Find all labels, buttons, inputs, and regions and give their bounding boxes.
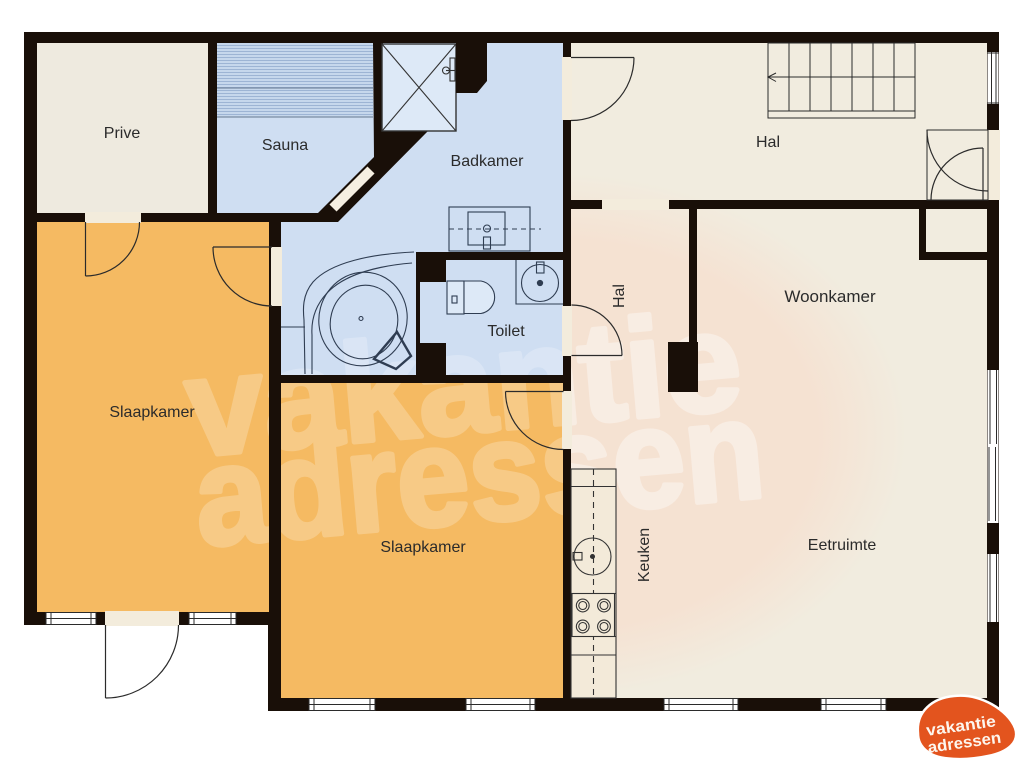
svg-text:Badkamer: Badkamer xyxy=(451,153,525,170)
svg-text:Slaapkamer: Slaapkamer xyxy=(109,404,195,421)
svg-text:Hal: Hal xyxy=(756,134,780,151)
svg-text:Hal: Hal xyxy=(611,284,628,308)
svg-text:Toilet: Toilet xyxy=(487,323,525,340)
svg-text:Slaapkamer: Slaapkamer xyxy=(380,539,466,556)
svg-text:Keuken: Keuken xyxy=(636,528,653,582)
svg-text:Woonkamer: Woonkamer xyxy=(784,287,876,306)
svg-text:Sauna: Sauna xyxy=(262,137,308,154)
svg-text:Eetruimte: Eetruimte xyxy=(808,537,877,554)
svg-text:Prive: Prive xyxy=(104,125,141,142)
